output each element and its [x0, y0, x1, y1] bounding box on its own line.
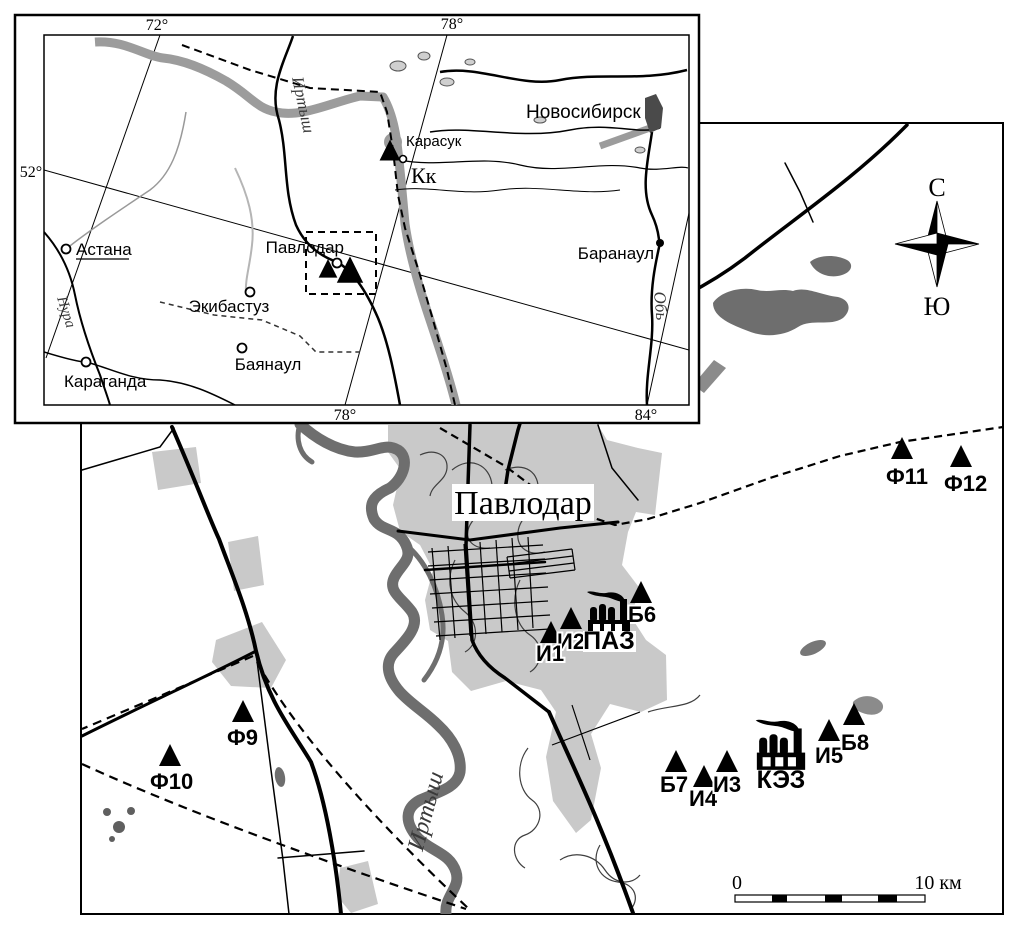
- barnaul-label: Баранаул: [578, 244, 654, 263]
- ekibastuz-marker: [246, 288, 255, 297]
- pavlodar-marker: [333, 259, 342, 268]
- barnaul-marker: [656, 239, 664, 247]
- station-label: И1: [536, 641, 564, 666]
- bayanaul-label: Баянаул: [235, 355, 302, 374]
- novosibirsk-label: Новосибирск: [526, 102, 641, 123]
- grid-label-84: 84°: [635, 407, 657, 424]
- scale-end: 10 км: [914, 872, 962, 894]
- grid-label-78-bottom: 78°: [334, 407, 356, 424]
- city-label: Павлодар: [454, 485, 592, 522]
- grid-label-52: 52°: [20, 164, 42, 181]
- karasuk-marker: [400, 156, 407, 163]
- station-label: Ф10: [150, 769, 193, 794]
- astana-label: Астана: [76, 240, 132, 259]
- astana-marker: [62, 245, 71, 254]
- pavlodar-inset-label: Павлодар: [266, 238, 344, 257]
- factory-label-kez: КЭЗ: [757, 766, 806, 794]
- station-label: Б6: [628, 602, 656, 627]
- station-label: Б8: [841, 730, 869, 755]
- inset-map: 72° 78° 52° 78° 84° Астана Караганда Эки…: [15, 15, 699, 424]
- karaganda-label: Караганда: [64, 372, 147, 391]
- karasuk-abbr-label: Кк: [411, 163, 437, 188]
- compass-north-label: С: [928, 173, 945, 202]
- map-figure: С Ю Павлодар Иртыш Ф11 Ф12 Б6 И2 И1 Б7: [0, 0, 1016, 927]
- station-label: Ф12: [944, 471, 987, 496]
- karasuk-label: Карасук: [406, 133, 462, 150]
- station-label: Б7: [660, 772, 688, 797]
- map-svg: С Ю Павлодар Иртыш Ф11 Ф12 Б6 И2 И1 Б7: [0, 0, 1016, 927]
- karaganda-marker: [82, 358, 91, 367]
- inset-river-label-ob: Обь: [650, 291, 671, 321]
- station-label: И3: [713, 772, 741, 797]
- factory-label-paz: ПАЗ: [583, 627, 635, 655]
- scale-start: 0: [732, 872, 742, 894]
- ekibastuz-label: Экибастуз: [189, 297, 270, 316]
- station-label: Ф9: [227, 725, 258, 750]
- station-label: И5: [815, 743, 843, 768]
- station-label: Ф11: [886, 464, 928, 489]
- grid-label-78-top: 78°: [441, 16, 463, 33]
- compass-south-label: Ю: [924, 292, 951, 321]
- grid-label-72: 72°: [146, 17, 168, 34]
- bayanaul-marker: [238, 344, 247, 353]
